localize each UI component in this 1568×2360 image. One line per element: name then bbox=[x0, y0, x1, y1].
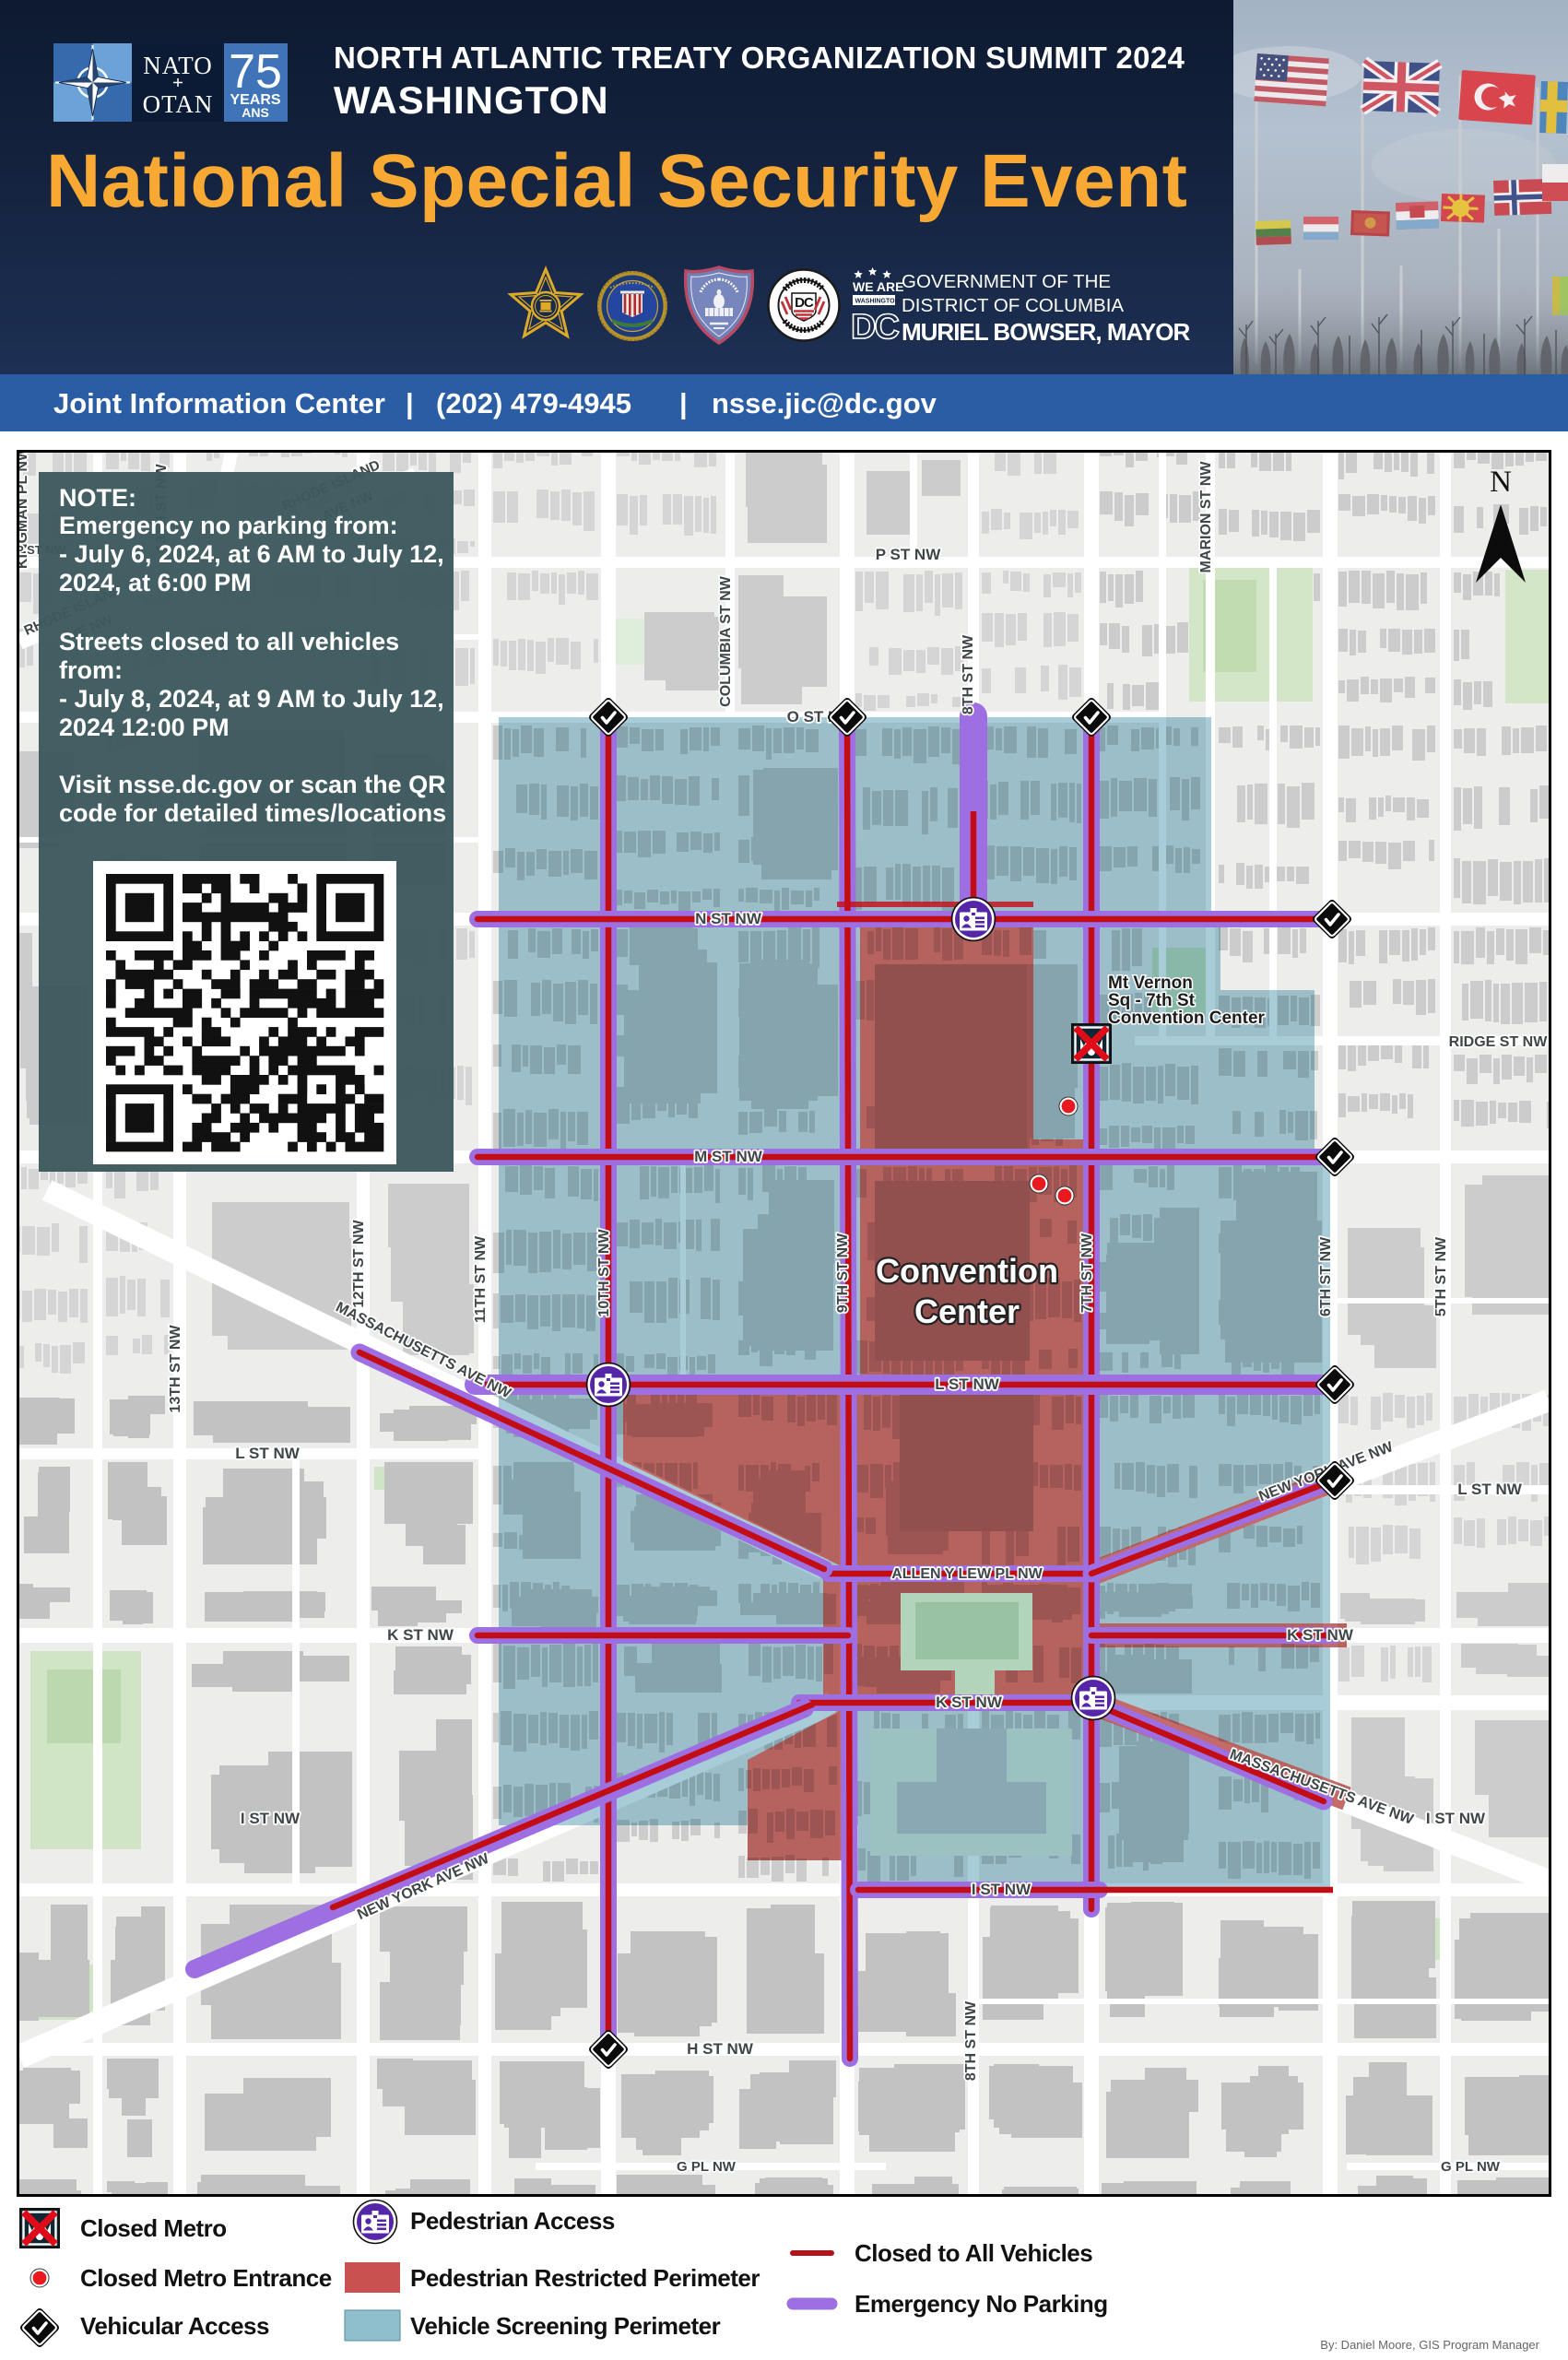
svg-text:8TH ST NW: 8TH ST NW bbox=[963, 2000, 979, 2081]
svg-text:L ST NW: L ST NW bbox=[235, 1445, 301, 1462]
svg-text:G PL NW: G PL NW bbox=[677, 2159, 737, 2175]
svg-text:7TH ST NW: 7TH ST NW bbox=[1079, 1233, 1095, 1313]
svg-text:COLUMBIA ST NW: COLUMBIA ST NW bbox=[718, 575, 734, 707]
svg-text:from:: from: bbox=[59, 656, 123, 684]
svg-text:I ST NW: I ST NW bbox=[241, 1810, 301, 1827]
svg-text:8TH ST NW: 8TH ST NW bbox=[961, 634, 976, 714]
svg-text:10TH ST NW: 10TH ST NW bbox=[596, 1229, 612, 1317]
svg-text:Convention: Convention bbox=[876, 1252, 1058, 1290]
svg-text:Emergency No Parking: Emergency No Parking bbox=[855, 2290, 1108, 2318]
svg-text:K ST NW: K ST NW bbox=[936, 1693, 1003, 1711]
svg-text:Mt Vernon: Mt Vernon bbox=[1108, 973, 1193, 993]
svg-text:NOTE:: NOTE: bbox=[59, 484, 136, 512]
svg-text:GOVERNMENT OF THE: GOVERNMENT OF THE bbox=[902, 271, 1111, 292]
svg-text:Convention Center: Convention Center bbox=[1108, 1009, 1266, 1028]
svg-text:N ST NW: N ST NW bbox=[695, 910, 762, 927]
svg-text:K ST NW: K ST NW bbox=[387, 1626, 454, 1644]
svg-text:Emergency no parking from:: Emergency no parking from: bbox=[59, 512, 398, 539]
svg-text:P ST NW: P ST NW bbox=[876, 546, 941, 563]
svg-text:6TH ST NW: 6TH ST NW bbox=[1318, 1236, 1334, 1316]
svg-text:M ST NW: M ST NW bbox=[694, 1148, 763, 1165]
svg-text:ALLEN Y LEW PL NW: ALLEN Y LEW PL NW bbox=[891, 1566, 1043, 1582]
svg-text:Streets closed to all vehicles: Streets closed to all vehicles bbox=[59, 628, 399, 655]
svg-text:DC: DC bbox=[851, 308, 899, 347]
svg-text:G PL NW: G PL NW bbox=[1441, 2159, 1501, 2175]
svg-text:L ST NW: L ST NW bbox=[1457, 1481, 1523, 1498]
svg-text:DISTRICT OF COLUMBIA: DISTRICT OF COLUMBIA bbox=[902, 295, 1124, 316]
svg-text:Visit nsse.dc.gov or scan the: Visit nsse.dc.gov or scan the QR bbox=[59, 771, 446, 798]
svg-text:ANS: ANS bbox=[242, 105, 269, 120]
svg-text:Closed Metro Entrance: Closed Metro Entrance bbox=[80, 2264, 332, 2292]
svg-text:WE ARE: WE ARE bbox=[853, 279, 903, 294]
svg-text:code for detailed times/locati: code for detailed times/locations bbox=[59, 799, 446, 827]
svg-text:Sq - 7th St: Sq - 7th St bbox=[1108, 991, 1196, 1010]
svg-text:WASHINGTON: WASHINGTON bbox=[855, 299, 900, 305]
svg-text:Pedestrian Restricted Perimete: Pedestrian Restricted Perimeter bbox=[410, 2264, 760, 2292]
svg-text:75: 75 bbox=[229, 45, 282, 99]
svg-text:Pedestrian Access: Pedestrian Access bbox=[410, 2207, 615, 2235]
svg-text:5TH ST NW: 5TH ST NW bbox=[1433, 1236, 1449, 1316]
svg-text:11TH ST NW: 11TH ST NW bbox=[473, 1235, 489, 1323]
svg-text:MURIEL BOWSER, MAYOR: MURIEL BOWSER, MAYOR bbox=[902, 318, 1190, 346]
svg-text:Vehicle Screening Perimeter: Vehicle Screening Perimeter bbox=[410, 2312, 721, 2340]
svg-text:OTAN: OTAN bbox=[143, 90, 214, 118]
svg-text:L ST NW: L ST NW bbox=[935, 1375, 1000, 1393]
svg-text:I ST NW: I ST NW bbox=[972, 1881, 1032, 1898]
svg-text:Closed Metro: Closed Metro bbox=[80, 2214, 227, 2242]
svg-text:H ST NW: H ST NW bbox=[687, 2040, 754, 2058]
svg-text:Vehicular Access: Vehicular Access bbox=[80, 2312, 269, 2340]
svg-text:MARION ST NW: MARION ST NW bbox=[1198, 461, 1214, 573]
svg-text:NATO: NATO bbox=[143, 52, 213, 79]
svg-text:9TH ST NW: 9TH ST NW bbox=[835, 1233, 851, 1313]
svg-text:2024 12:00 PM: 2024 12:00 PM bbox=[59, 714, 230, 741]
svg-text:2024, at 6:00 PM: 2024, at 6:00 PM bbox=[59, 569, 252, 596]
svg-text:12TH ST NW: 12TH ST NW bbox=[351, 1220, 367, 1308]
svg-text:By: Daniel Moore, GIS Program: By: Daniel Moore, GIS Program Manager bbox=[1320, 2338, 1539, 2352]
svg-text:- July 8, 2024, at 9 AM to Jul: - July 8, 2024, at 9 AM to July 12, bbox=[59, 685, 444, 713]
svg-text:K ST NW: K ST NW bbox=[1287, 1626, 1354, 1644]
svg-text:N: N bbox=[1490, 466, 1512, 499]
svg-text:DC: DC bbox=[795, 295, 814, 311]
svg-text:Center: Center bbox=[914, 1292, 1020, 1330]
svg-text:- July 6, 2024, at 6 AM to Jul: - July 6, 2024, at 6 AM to July 12, bbox=[59, 540, 444, 568]
svg-text:13TH ST NW: 13TH ST NW bbox=[168, 1325, 183, 1413]
svg-text:Closed to All Vehicles: Closed to All Vehicles bbox=[855, 2239, 1092, 2267]
svg-text:I ST NW: I ST NW bbox=[1426, 1810, 1486, 1827]
svg-text:RIDGE ST NW: RIDGE ST NW bbox=[1449, 1034, 1549, 1050]
